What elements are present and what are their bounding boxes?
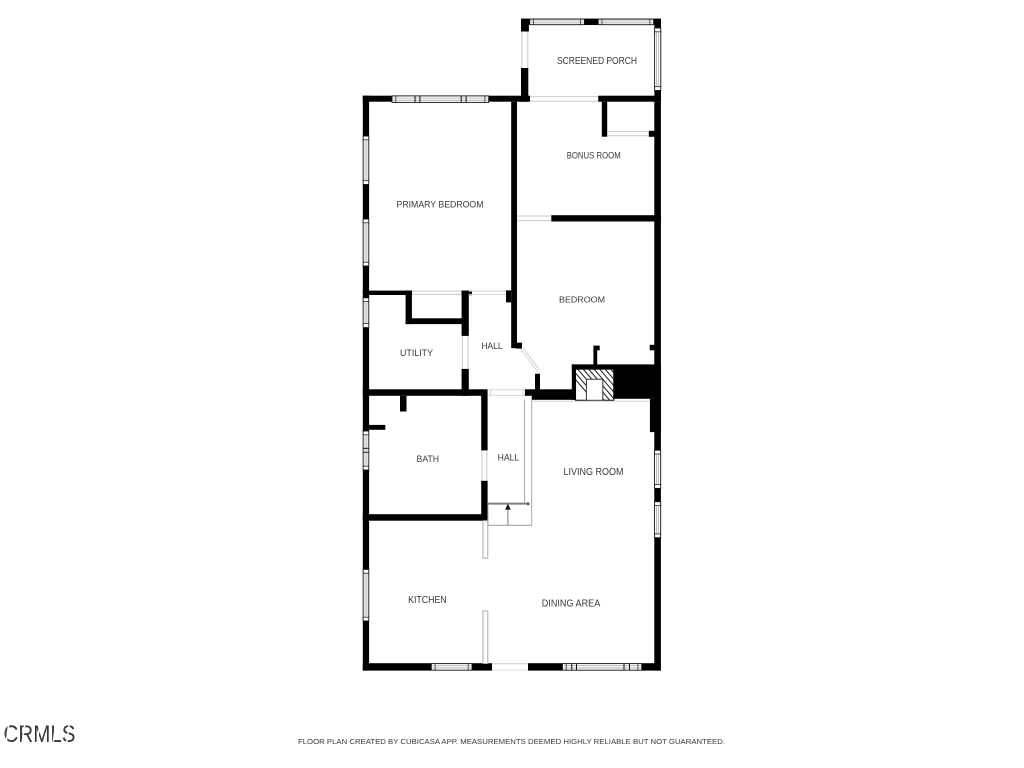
svg-text:SCREENED PORCH: SCREENED PORCH: [557, 56, 637, 67]
svg-text:BATH: BATH: [417, 454, 440, 465]
svg-text:HALL: HALL: [498, 452, 520, 463]
svg-text:BONUS ROOM: BONUS ROOM: [567, 151, 621, 161]
svg-text:DINING AREA: DINING AREA: [542, 599, 601, 610]
svg-text:HALL: HALL: [482, 341, 503, 352]
svg-text:LIVING ROOM: LIVING ROOM: [564, 466, 624, 478]
svg-text:UTILITY: UTILITY: [400, 348, 434, 359]
svg-text:BEDROOM: BEDROOM: [559, 295, 605, 305]
svg-text:PRIMARY BEDROOM: PRIMARY BEDROOM: [397, 199, 484, 209]
svg-text:FLOOR PLAN CREATED BY CUBICASA: FLOOR PLAN CREATED BY CUBICASA APP. MEAS…: [298, 739, 725, 746]
svg-text:KITCHEN: KITCHEN: [408, 595, 447, 606]
